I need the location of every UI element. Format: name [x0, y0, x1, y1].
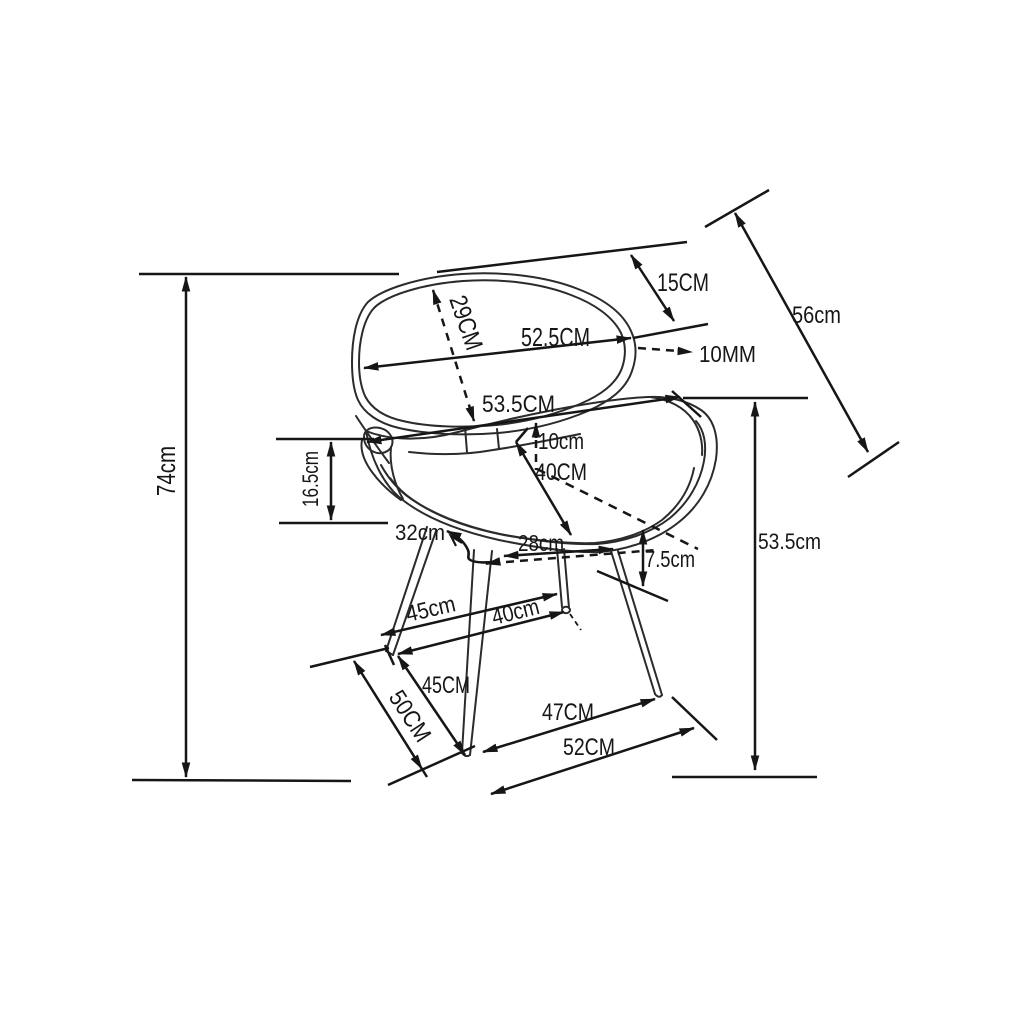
svg-text:15CM: 15CM [657, 269, 709, 297]
svg-text:47CM: 47CM [542, 699, 594, 726]
svg-text:10cm: 10cm [538, 428, 584, 454]
svg-text:53.5CM: 53.5CM [482, 391, 555, 418]
svg-text:28cm: 28cm [518, 530, 564, 556]
svg-text:53.5cm: 53.5cm [758, 529, 821, 554]
svg-text:74cm: 74cm [151, 446, 181, 496]
svg-text:56cm: 56cm [792, 302, 841, 329]
svg-text:32cm: 32cm [395, 520, 445, 545]
svg-text:7.5cm: 7.5cm [645, 546, 695, 572]
svg-text:45CM: 45CM [422, 672, 470, 699]
svg-text:40CM: 40CM [535, 459, 587, 486]
svg-text:52CM: 52CM [563, 734, 615, 761]
svg-text:52.5CM: 52.5CM [521, 322, 590, 352]
svg-text:16.5cm: 16.5cm [298, 451, 323, 507]
svg-text:10MM: 10MM [699, 341, 756, 367]
